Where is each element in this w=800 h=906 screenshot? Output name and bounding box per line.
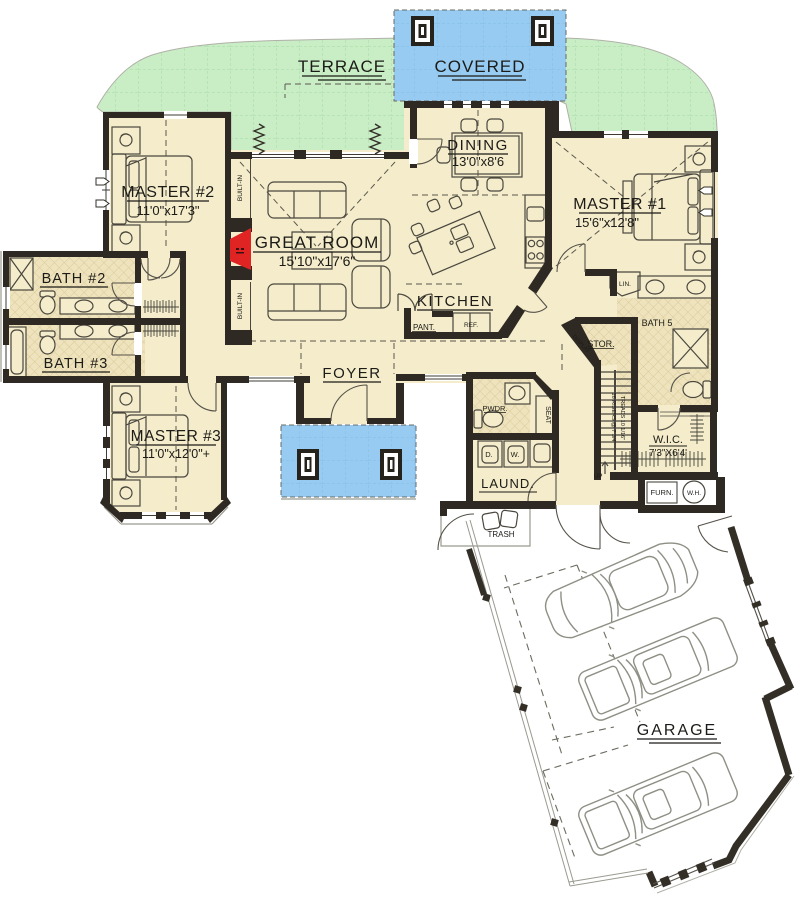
svg-text:STOR.: STOR. [587, 339, 614, 349]
svg-text:FOYER: FOYER [322, 365, 381, 382]
svg-text:MASTER #1: MASTER #1 [573, 196, 666, 213]
svg-text:GARAGE: GARAGE [637, 722, 717, 739]
svg-text:W.: W. [511, 450, 520, 459]
svg-text:11'0"x12'0"+: 11'0"x12'0"+ [142, 447, 210, 461]
svg-text:BATH 5: BATH 5 [642, 318, 673, 328]
svg-text:REF.: REF. [464, 322, 478, 329]
svg-text:SEAT: SEAT [544, 406, 551, 424]
svg-text:LAUND.: LAUND. [481, 476, 535, 491]
svg-text:KITCHEN: KITCHEN [417, 293, 493, 310]
svg-text:PANT.: PANT. [413, 323, 435, 332]
svg-text:LIN.: LIN. [619, 281, 631, 288]
svg-text:13'0"x8'6: 13'0"x8'6 [452, 154, 504, 169]
svg-text:BUILT-IN: BUILT-IN [237, 293, 244, 320]
svg-text:FURN.: FURN. [651, 488, 674, 497]
svg-text:15'10"x17'6": 15'10"x17'6" [279, 253, 356, 269]
svg-text:TREADS 10 1/16": TREADS 10 1/16" [619, 396, 625, 440]
svg-text:W.I.C.: W.I.C. [653, 434, 683, 446]
svg-text:GREAT ROOM: GREAT ROOM [255, 233, 380, 252]
svg-text:15'6"x12'8": 15'6"x12'8" [575, 215, 639, 230]
svg-text:COVERED: COVERED [434, 57, 525, 76]
svg-text:MASTER #3: MASTER #3 [131, 428, 222, 445]
svg-text:7'3"X6'4': 7'3"X6'4' [649, 448, 687, 459]
svg-text:BUILT-IN: BUILT-IN [237, 175, 244, 202]
svg-text:TRASH: TRASH [487, 530, 514, 539]
svg-text:TERRACE: TERRACE [298, 57, 386, 76]
svg-text:PWDR.: PWDR. [483, 404, 508, 413]
svg-text:D.: D. [485, 450, 493, 459]
svg-text:UP: UP [593, 473, 602, 480]
svg-text:W.H.: W.H. [687, 490, 701, 497]
svg-text:BATH #2: BATH #2 [42, 271, 107, 287]
svg-text:11'0"x17'3": 11'0"x17'3" [136, 203, 199, 218]
svg-text:BATH #3: BATH #3 [44, 356, 109, 372]
svg-text:16 RISERS @ 7 3/4": 16 RISERS @ 7 3/4" [610, 393, 616, 444]
svg-text:MASTER #2: MASTER #2 [121, 184, 214, 201]
svg-text:DINING: DINING [447, 137, 509, 154]
